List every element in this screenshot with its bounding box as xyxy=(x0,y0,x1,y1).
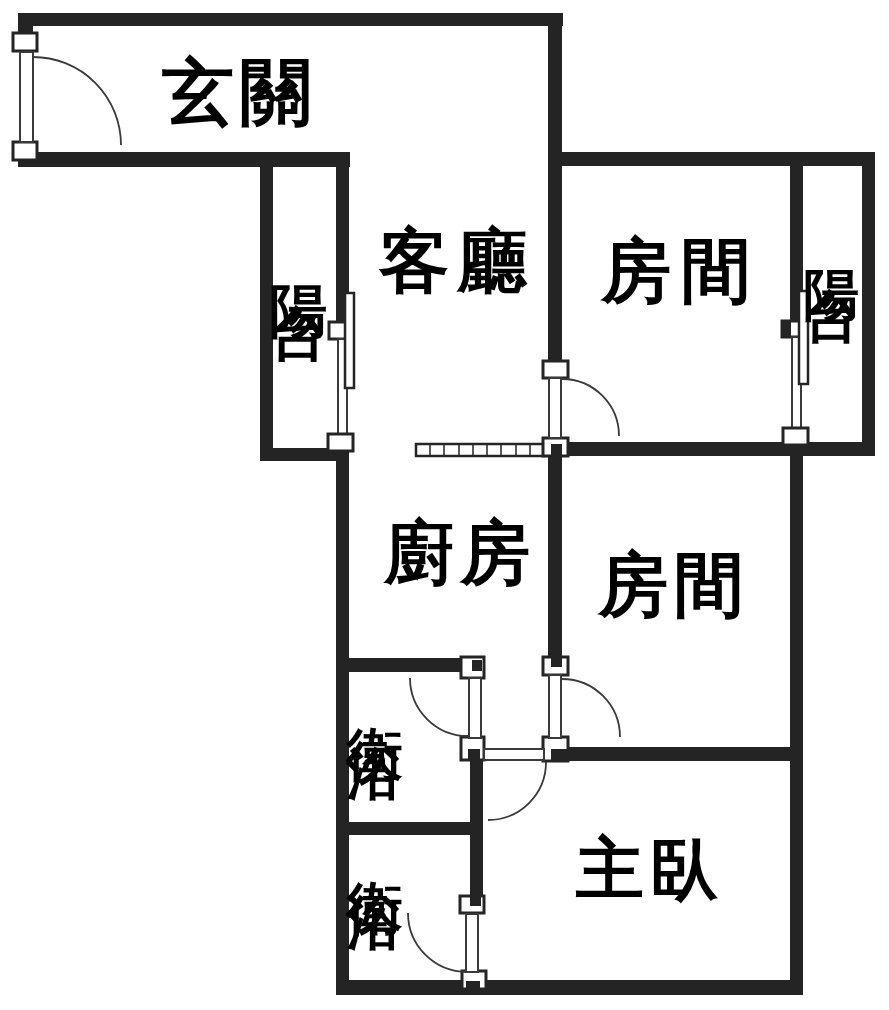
master-door-icon xyxy=(484,749,546,820)
living-kitchen-partition-icon xyxy=(416,444,544,456)
entry-door-icon xyxy=(13,33,121,160)
walls xyxy=(18,13,875,995)
bathroom2-door-icon xyxy=(408,896,486,989)
living-bedroom1-door-icon xyxy=(543,361,619,456)
bedroom2-door-icon xyxy=(543,657,620,761)
floor-plan: 玄關 陽台 客廳 房間 陽台 廚房 房間 衛浴 衛浴 主臥 xyxy=(0,0,889,1010)
bathroom1-door-icon xyxy=(410,657,484,760)
floor-plan-drawing xyxy=(0,0,889,1010)
